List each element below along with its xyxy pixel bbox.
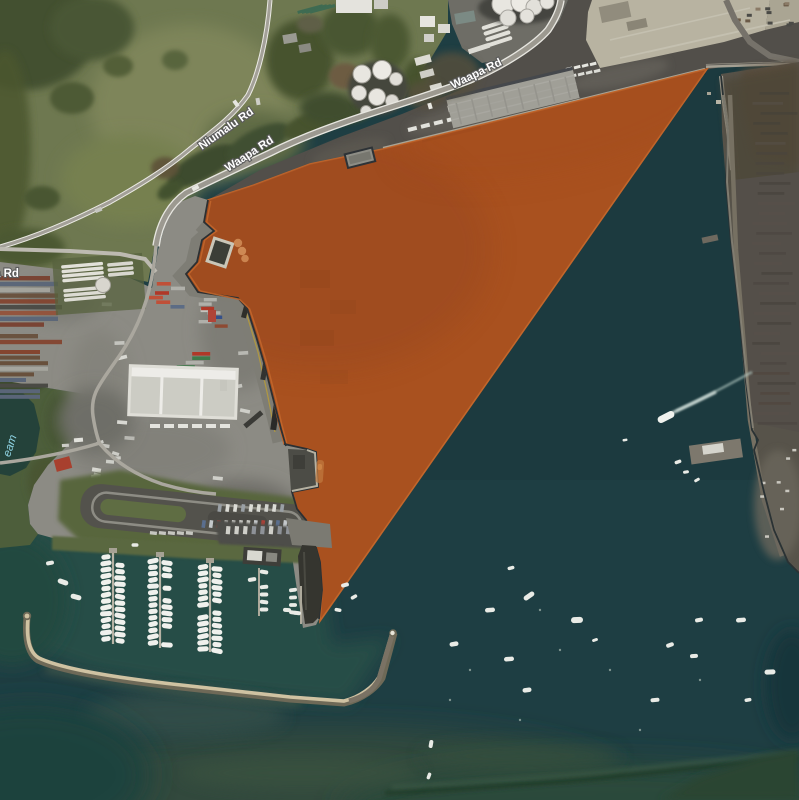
- svg-text:a Rd: a Rd: [0, 268, 19, 280]
